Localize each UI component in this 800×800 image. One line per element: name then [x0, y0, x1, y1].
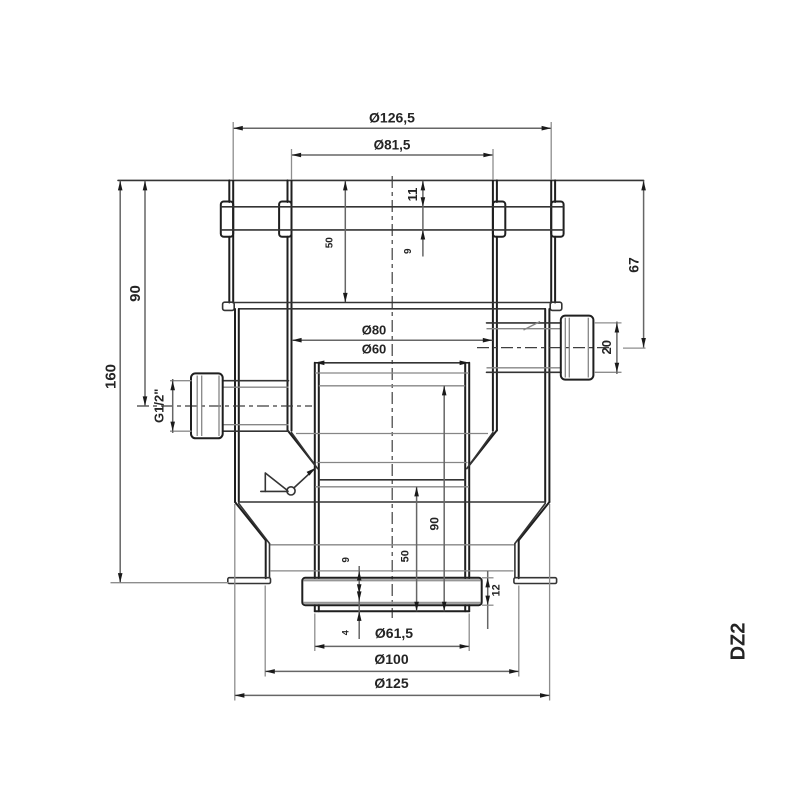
- svg-text:Ø100: Ø100: [374, 651, 408, 667]
- svg-text:4: 4: [341, 630, 351, 635]
- svg-text:DZ2: DZ2: [728, 623, 750, 661]
- svg-text:50: 50: [325, 237, 336, 249]
- svg-text:Ø61,5: Ø61,5: [375, 625, 413, 641]
- svg-text:Ø60: Ø60: [362, 342, 387, 357]
- svg-text:20: 20: [599, 340, 614, 354]
- svg-text:12: 12: [491, 584, 503, 596]
- svg-text:Ø80: Ø80: [362, 323, 387, 338]
- svg-text:160: 160: [103, 364, 120, 389]
- svg-text:Ø81,5: Ø81,5: [374, 138, 411, 153]
- svg-text:50: 50: [400, 550, 412, 562]
- svg-text:11: 11: [405, 188, 420, 202]
- svg-text:Ø126,5: Ø126,5: [369, 110, 415, 126]
- svg-text:67: 67: [626, 257, 642, 273]
- svg-text:90: 90: [127, 285, 144, 302]
- svg-text:9: 9: [341, 557, 352, 563]
- svg-text:90: 90: [428, 517, 442, 531]
- svg-text:Ø125: Ø125: [374, 675, 408, 691]
- svg-text:G1/2": G1/2": [152, 389, 167, 423]
- svg-text:9: 9: [403, 248, 414, 254]
